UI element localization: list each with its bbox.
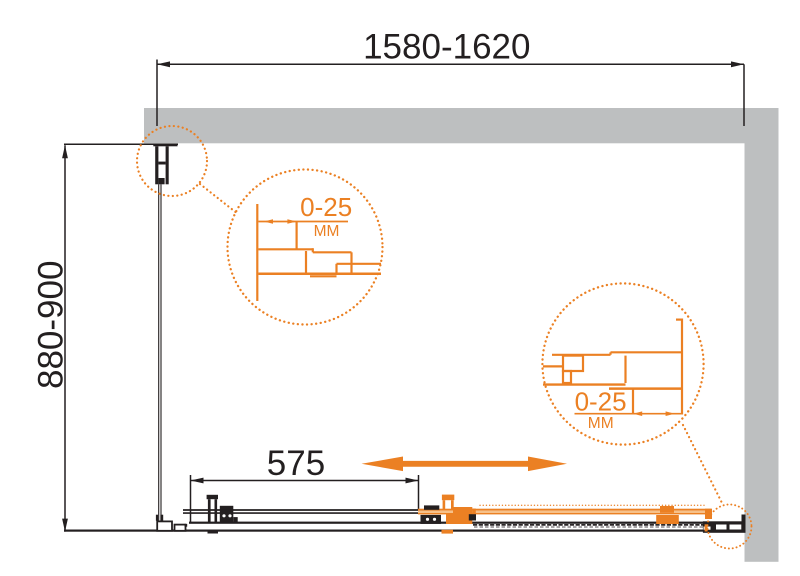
svg-text:0-25: 0-25 bbox=[300, 192, 352, 222]
svg-text:880-900: 880-900 bbox=[31, 261, 70, 389]
svg-text:1580-1620: 1580-1620 bbox=[363, 27, 530, 66]
svg-text:MM: MM bbox=[314, 223, 340, 240]
svg-text:0-25: 0-25 bbox=[575, 386, 627, 416]
svg-text:MM: MM bbox=[588, 415, 614, 432]
svg-text:575: 575 bbox=[267, 444, 325, 483]
